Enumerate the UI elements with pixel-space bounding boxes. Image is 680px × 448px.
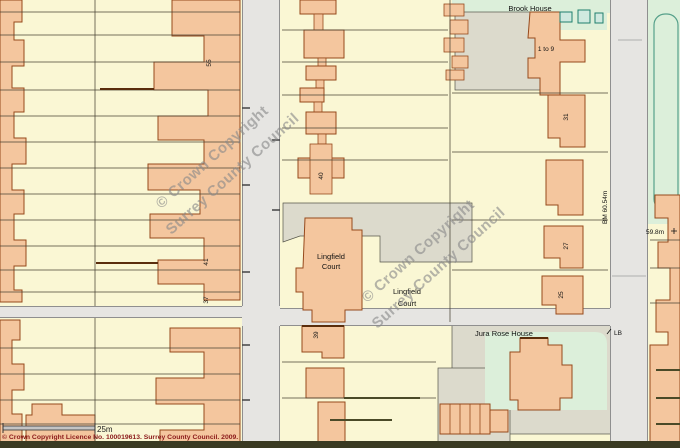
scale-bar-label: 25m — [97, 425, 113, 434]
cottage — [300, 0, 336, 14]
vegetation-strip-bottom — [0, 441, 680, 448]
glasshouse-icon — [560, 12, 572, 22]
label-no-25: 25 — [558, 291, 565, 299]
label-jura-rose-house: Jura Rose House — [475, 329, 533, 338]
green-parcel-east — [648, 0, 680, 224]
glasshouse-icon — [595, 13, 603, 23]
label-bench-mark: BM 60.54m — [602, 191, 609, 224]
cottage — [306, 66, 336, 80]
cottage-link — [318, 134, 326, 144]
map-svg: Brook House 1 to 9 Lingfield Court Lingf… — [0, 0, 680, 448]
label-spot-height: 59.8m — [646, 229, 664, 236]
road-east — [610, 0, 648, 448]
label-1-to-9: 1 to 9 — [538, 46, 555, 53]
road-west — [242, 0, 280, 448]
building-mid-bottom — [318, 402, 345, 444]
label-no-40: 40 — [318, 172, 325, 180]
label-no-39: 39 — [313, 331, 320, 339]
copyright-text: © Crown Copyright Licence No. 100019613.… — [2, 433, 238, 441]
garage-end — [490, 410, 508, 432]
label-lingfield-court-1a: Lingfield — [317, 252, 345, 261]
label-no-27: 27 — [563, 242, 570, 250]
label-letter-box: LB — [614, 330, 622, 337]
outbuilding — [444, 4, 464, 16]
label-no-41: 41 — [203, 258, 210, 266]
scale-bar-bar — [3, 426, 95, 430]
garages — [440, 404, 490, 434]
label-no-31: 31 — [563, 113, 570, 121]
outbuilding — [444, 38, 464, 52]
cottage-link — [314, 102, 322, 112]
building-no-40-wing — [310, 144, 332, 194]
label-no-37: 37 — [203, 296, 210, 304]
cottage-link — [314, 14, 323, 30]
outbuilding — [452, 56, 468, 68]
label-brook-house: Brook House — [508, 4, 551, 13]
label-no-55: 55 — [206, 59, 213, 67]
cottage — [304, 30, 344, 58]
cottage — [306, 112, 336, 134]
terrace-far-left-upper — [0, 0, 26, 302]
cottage-link — [316, 80, 324, 88]
building-mid-lower — [306, 368, 344, 398]
map-canvas[interactable]: Brook House 1 to 9 Lingfield Court Lingf… — [0, 0, 680, 448]
outbuilding — [450, 20, 468, 34]
road-cross-west — [0, 306, 242, 318]
label-lingfield-court-1b: Court — [322, 262, 341, 271]
outbuilding — [446, 70, 464, 80]
glasshouse-icon — [578, 10, 590, 23]
